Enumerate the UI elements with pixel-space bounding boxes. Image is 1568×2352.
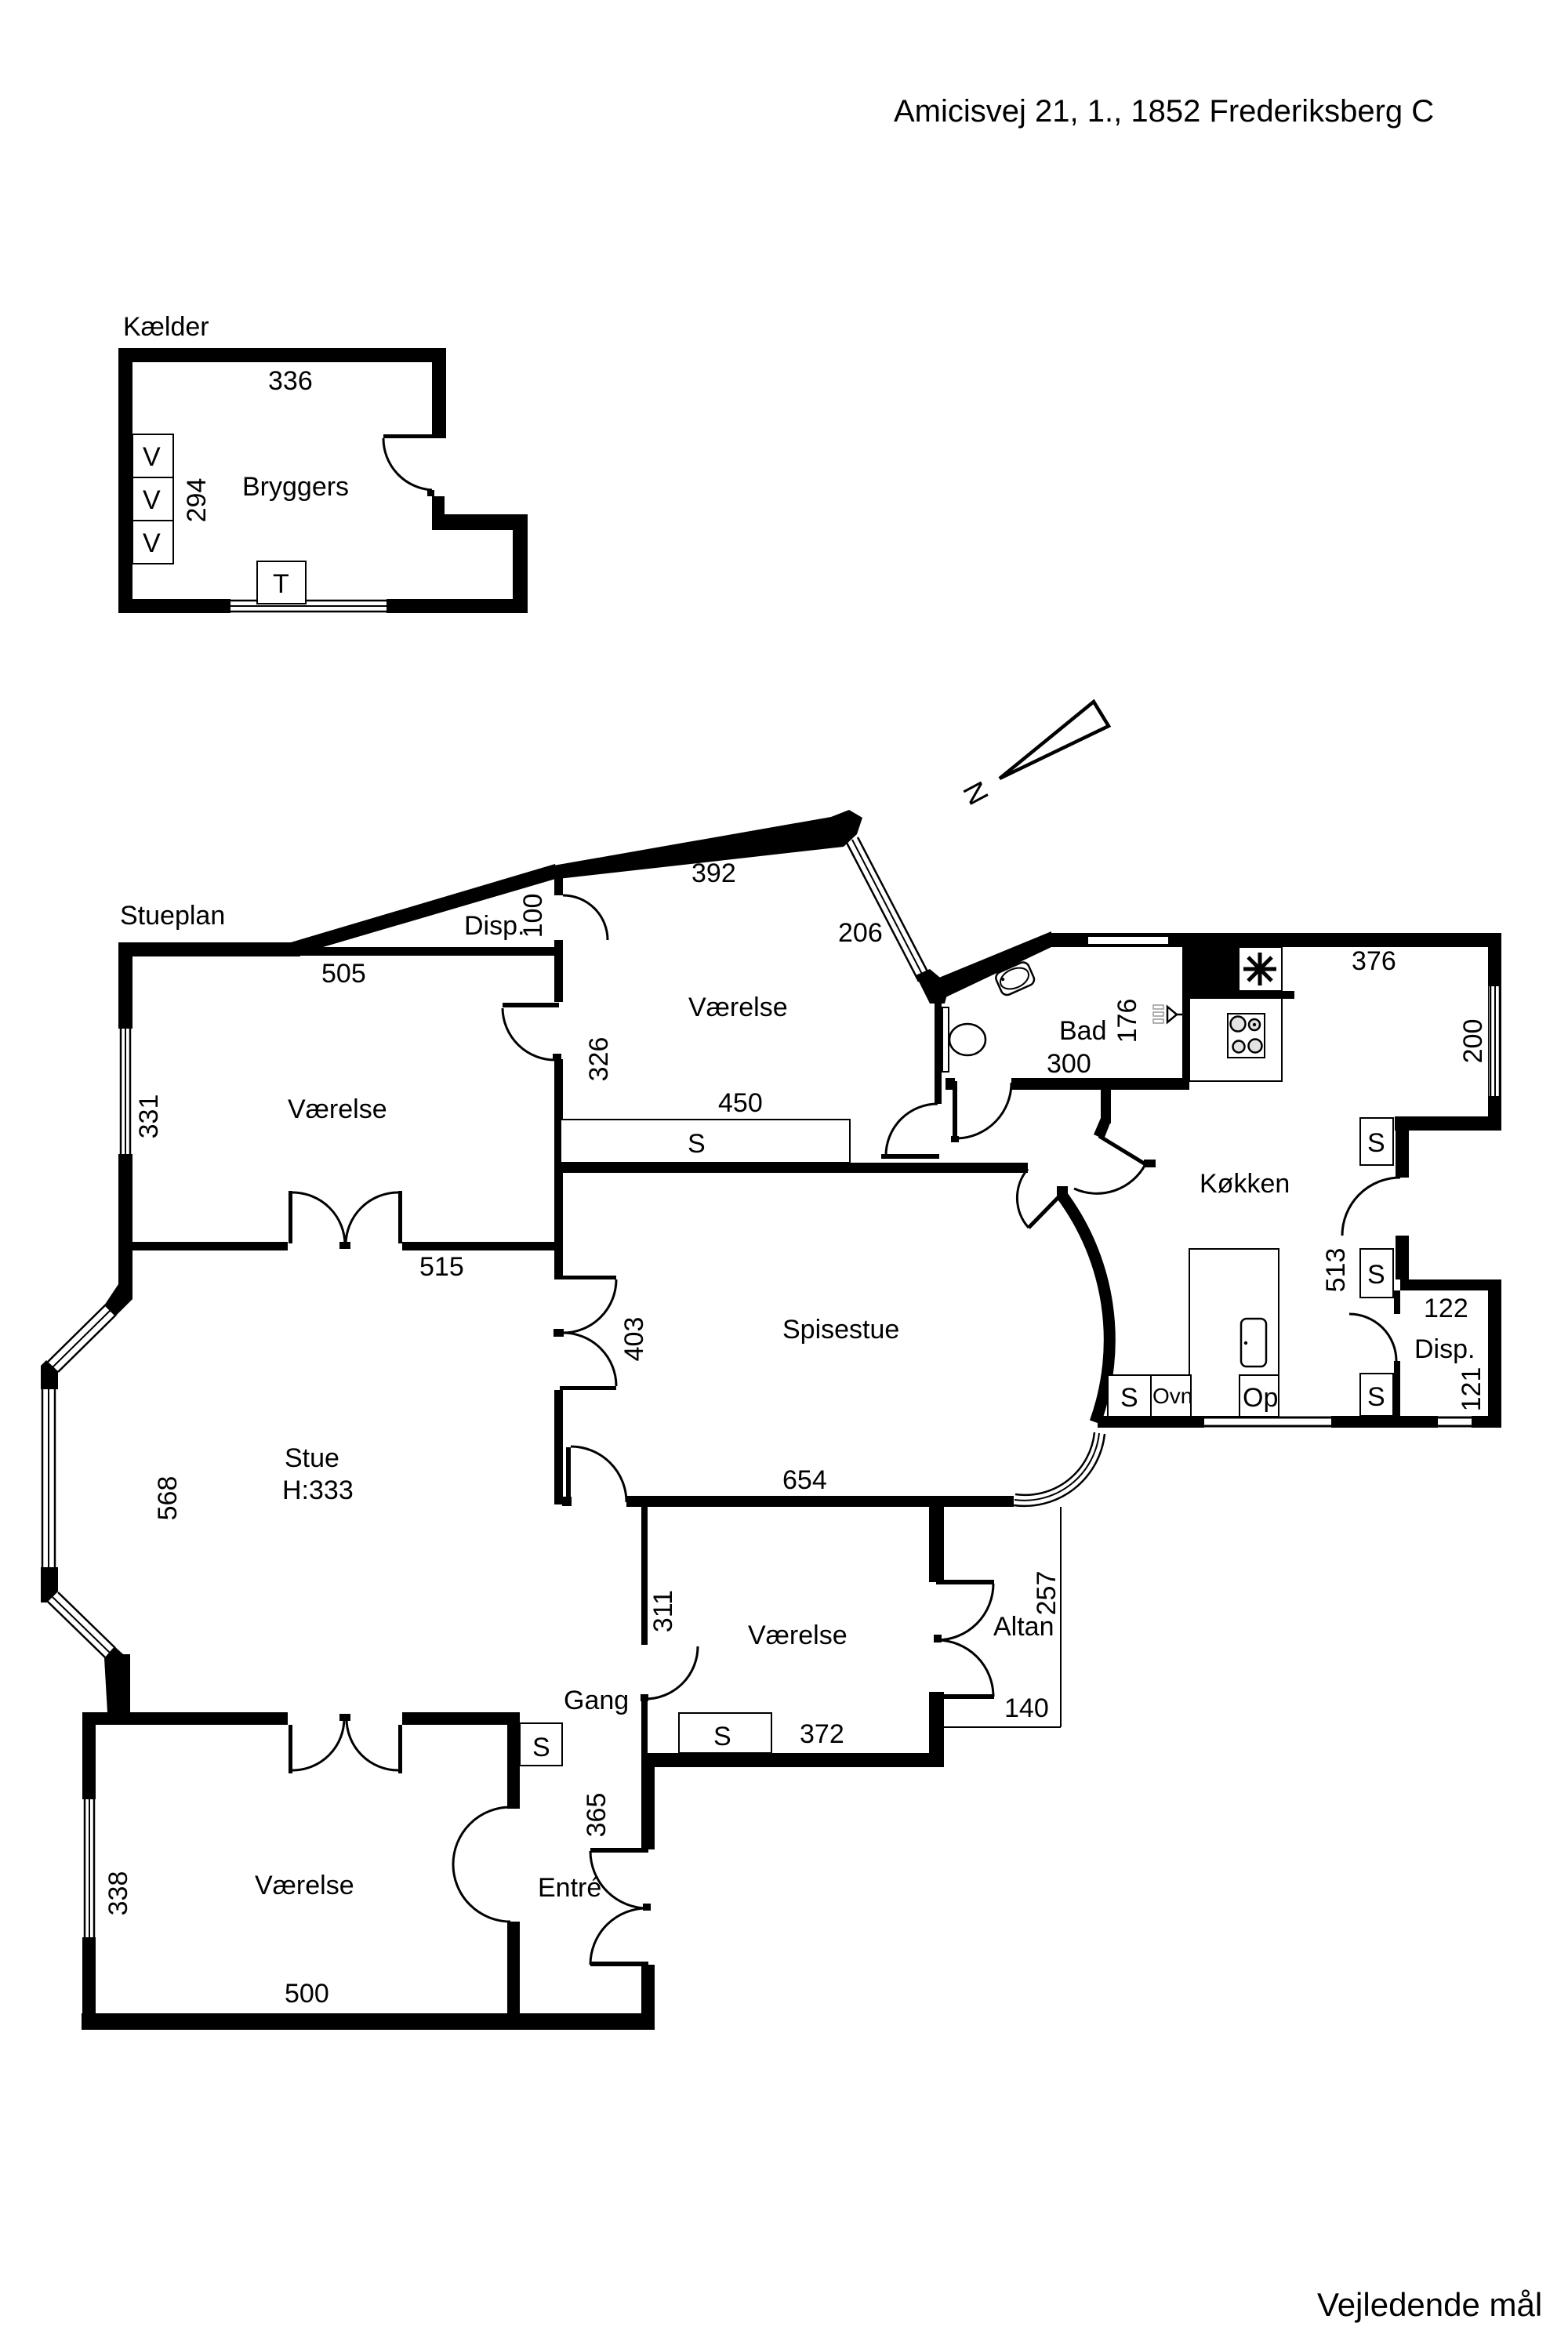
- svg-text:331: 331: [134, 1094, 164, 1139]
- svg-text:Amicisvej 21, 1., 1852 Frederi: Amicisvej 21, 1., 1852 Frederiksberg C: [894, 94, 1434, 129]
- svg-text:V: V: [143, 442, 161, 472]
- svg-text:Værelse: Værelse: [288, 1094, 387, 1124]
- svg-text:S: S: [1367, 1382, 1385, 1412]
- svg-text:311: 311: [648, 1590, 678, 1632]
- svg-text:300: 300: [1047, 1049, 1091, 1079]
- svg-text:654: 654: [782, 1465, 827, 1495]
- svg-text:336: 336: [268, 366, 313, 396]
- svg-text:100: 100: [518, 894, 548, 938]
- svg-text:Stue: Stue: [285, 1443, 339, 1473]
- svg-text:Kælder: Kælder: [123, 312, 209, 342]
- svg-text:Op: Op: [1243, 1383, 1278, 1413]
- svg-text:Disp.: Disp.: [464, 911, 524, 941]
- svg-text:S: S: [713, 1722, 731, 1751]
- svg-text:S: S: [1120, 1383, 1138, 1413]
- svg-text:257: 257: [1032, 1571, 1062, 1616]
- svg-text:Værelse: Værelse: [255, 1871, 354, 1900]
- svg-text:392: 392: [691, 858, 736, 888]
- svg-text:Værelse: Værelse: [748, 1621, 848, 1650]
- svg-text:338: 338: [103, 1871, 133, 1916]
- svg-text:H:333: H:333: [282, 1475, 354, 1505]
- svg-text:Vejledende mål: Vejledende mål: [1317, 2286, 1542, 2323]
- svg-text:Altan: Altan: [993, 1612, 1054, 1642]
- svg-text:403: 403: [619, 1317, 649, 1362]
- svg-text:122: 122: [1424, 1294, 1468, 1323]
- svg-text:S: S: [1367, 1128, 1385, 1158]
- svg-text:Køkken: Køkken: [1200, 1169, 1290, 1199]
- svg-text:568: 568: [153, 1476, 183, 1521]
- svg-text:Gang: Gang: [564, 1686, 629, 1715]
- svg-text:Stueplan: Stueplan: [120, 901, 225, 931]
- svg-text:V: V: [143, 528, 161, 558]
- svg-text:450: 450: [718, 1088, 763, 1118]
- svg-text:Bryggers: Bryggers: [242, 472, 349, 502]
- svg-text:121: 121: [1457, 1367, 1486, 1412]
- svg-text:S: S: [532, 1733, 550, 1762]
- svg-text:365: 365: [582, 1793, 612, 1838]
- svg-text:505: 505: [321, 959, 366, 989]
- svg-text:515: 515: [419, 1252, 464, 1282]
- svg-text:T: T: [273, 569, 289, 599]
- svg-text:Bad: Bad: [1059, 1016, 1107, 1046]
- svg-text:S: S: [1367, 1260, 1385, 1290]
- svg-text:Disp.: Disp.: [1414, 1334, 1475, 1364]
- svg-text:140: 140: [1004, 1693, 1049, 1723]
- svg-text:176: 176: [1112, 999, 1142, 1044]
- svg-text:372: 372: [800, 1719, 844, 1749]
- svg-text:200: 200: [1458, 1019, 1488, 1064]
- svg-text:S: S: [688, 1129, 706, 1159]
- svg-text:326: 326: [584, 1037, 614, 1082]
- svg-text:Ovn: Ovn: [1152, 1384, 1192, 1408]
- svg-text:V: V: [143, 485, 161, 515]
- svg-text:Værelse: Værelse: [688, 993, 788, 1022]
- svg-text:Spisestue: Spisestue: [782, 1315, 899, 1345]
- svg-text:206: 206: [838, 918, 883, 948]
- svg-text:294: 294: [182, 478, 212, 523]
- svg-text:513: 513: [1321, 1248, 1351, 1293]
- svg-text:376: 376: [1352, 946, 1396, 976]
- svg-text:Entré: Entré: [538, 1873, 601, 1903]
- svg-text:500: 500: [285, 1979, 329, 2009]
